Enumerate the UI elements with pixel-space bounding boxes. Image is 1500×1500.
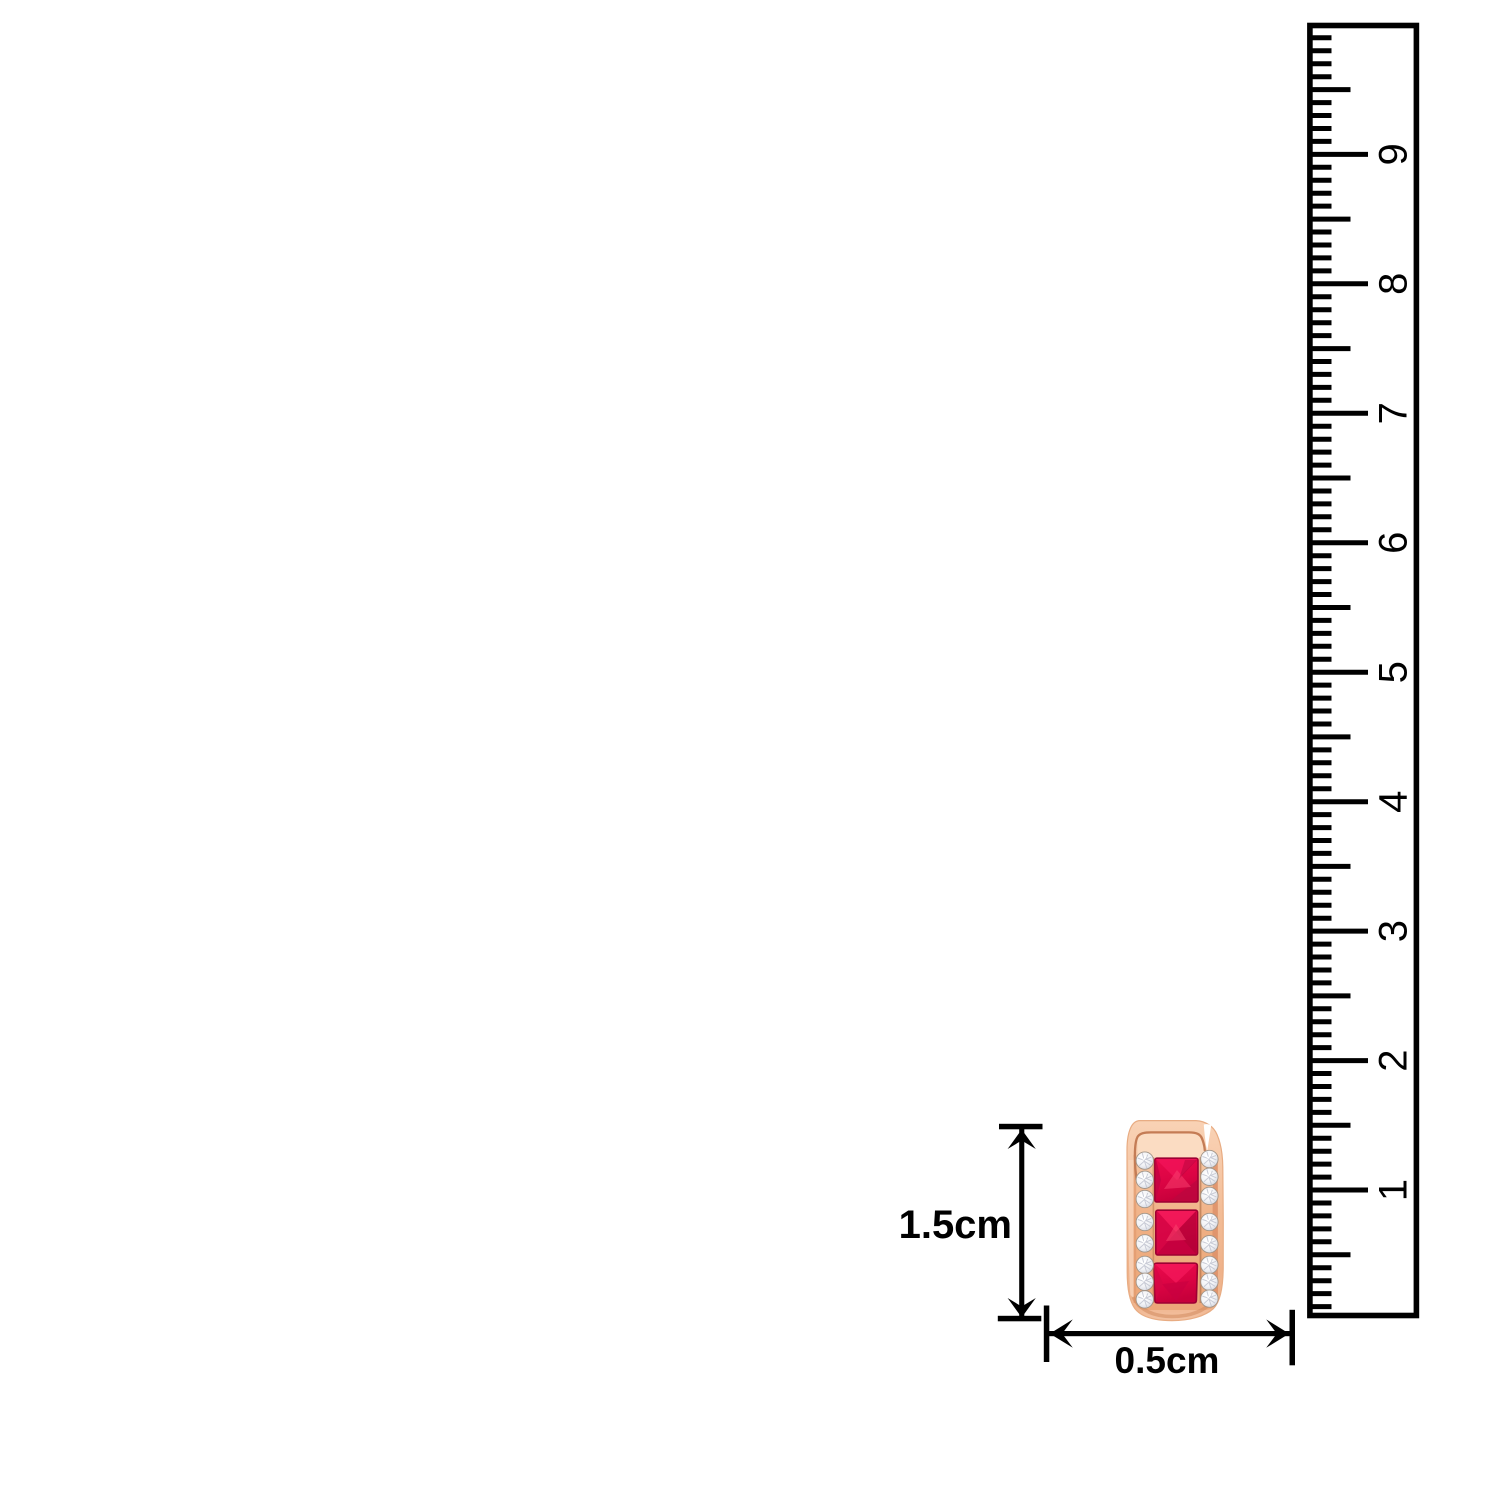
svg-text:6: 6 (1372, 532, 1416, 554)
svg-text:7: 7 (1372, 402, 1416, 424)
svg-text:1: 1 (1372, 1179, 1416, 1201)
svg-text:5: 5 (1372, 661, 1416, 683)
svg-text:8: 8 (1372, 273, 1416, 295)
svg-text:9: 9 (1372, 143, 1416, 165)
svg-text:3: 3 (1372, 920, 1416, 942)
svg-text:4: 4 (1372, 791, 1416, 813)
svg-text:1.5cm: 1.5cm (899, 1203, 1012, 1247)
svg-text:2: 2 (1372, 1049, 1416, 1071)
svg-text:0.5cm: 0.5cm (1115, 1340, 1220, 1381)
